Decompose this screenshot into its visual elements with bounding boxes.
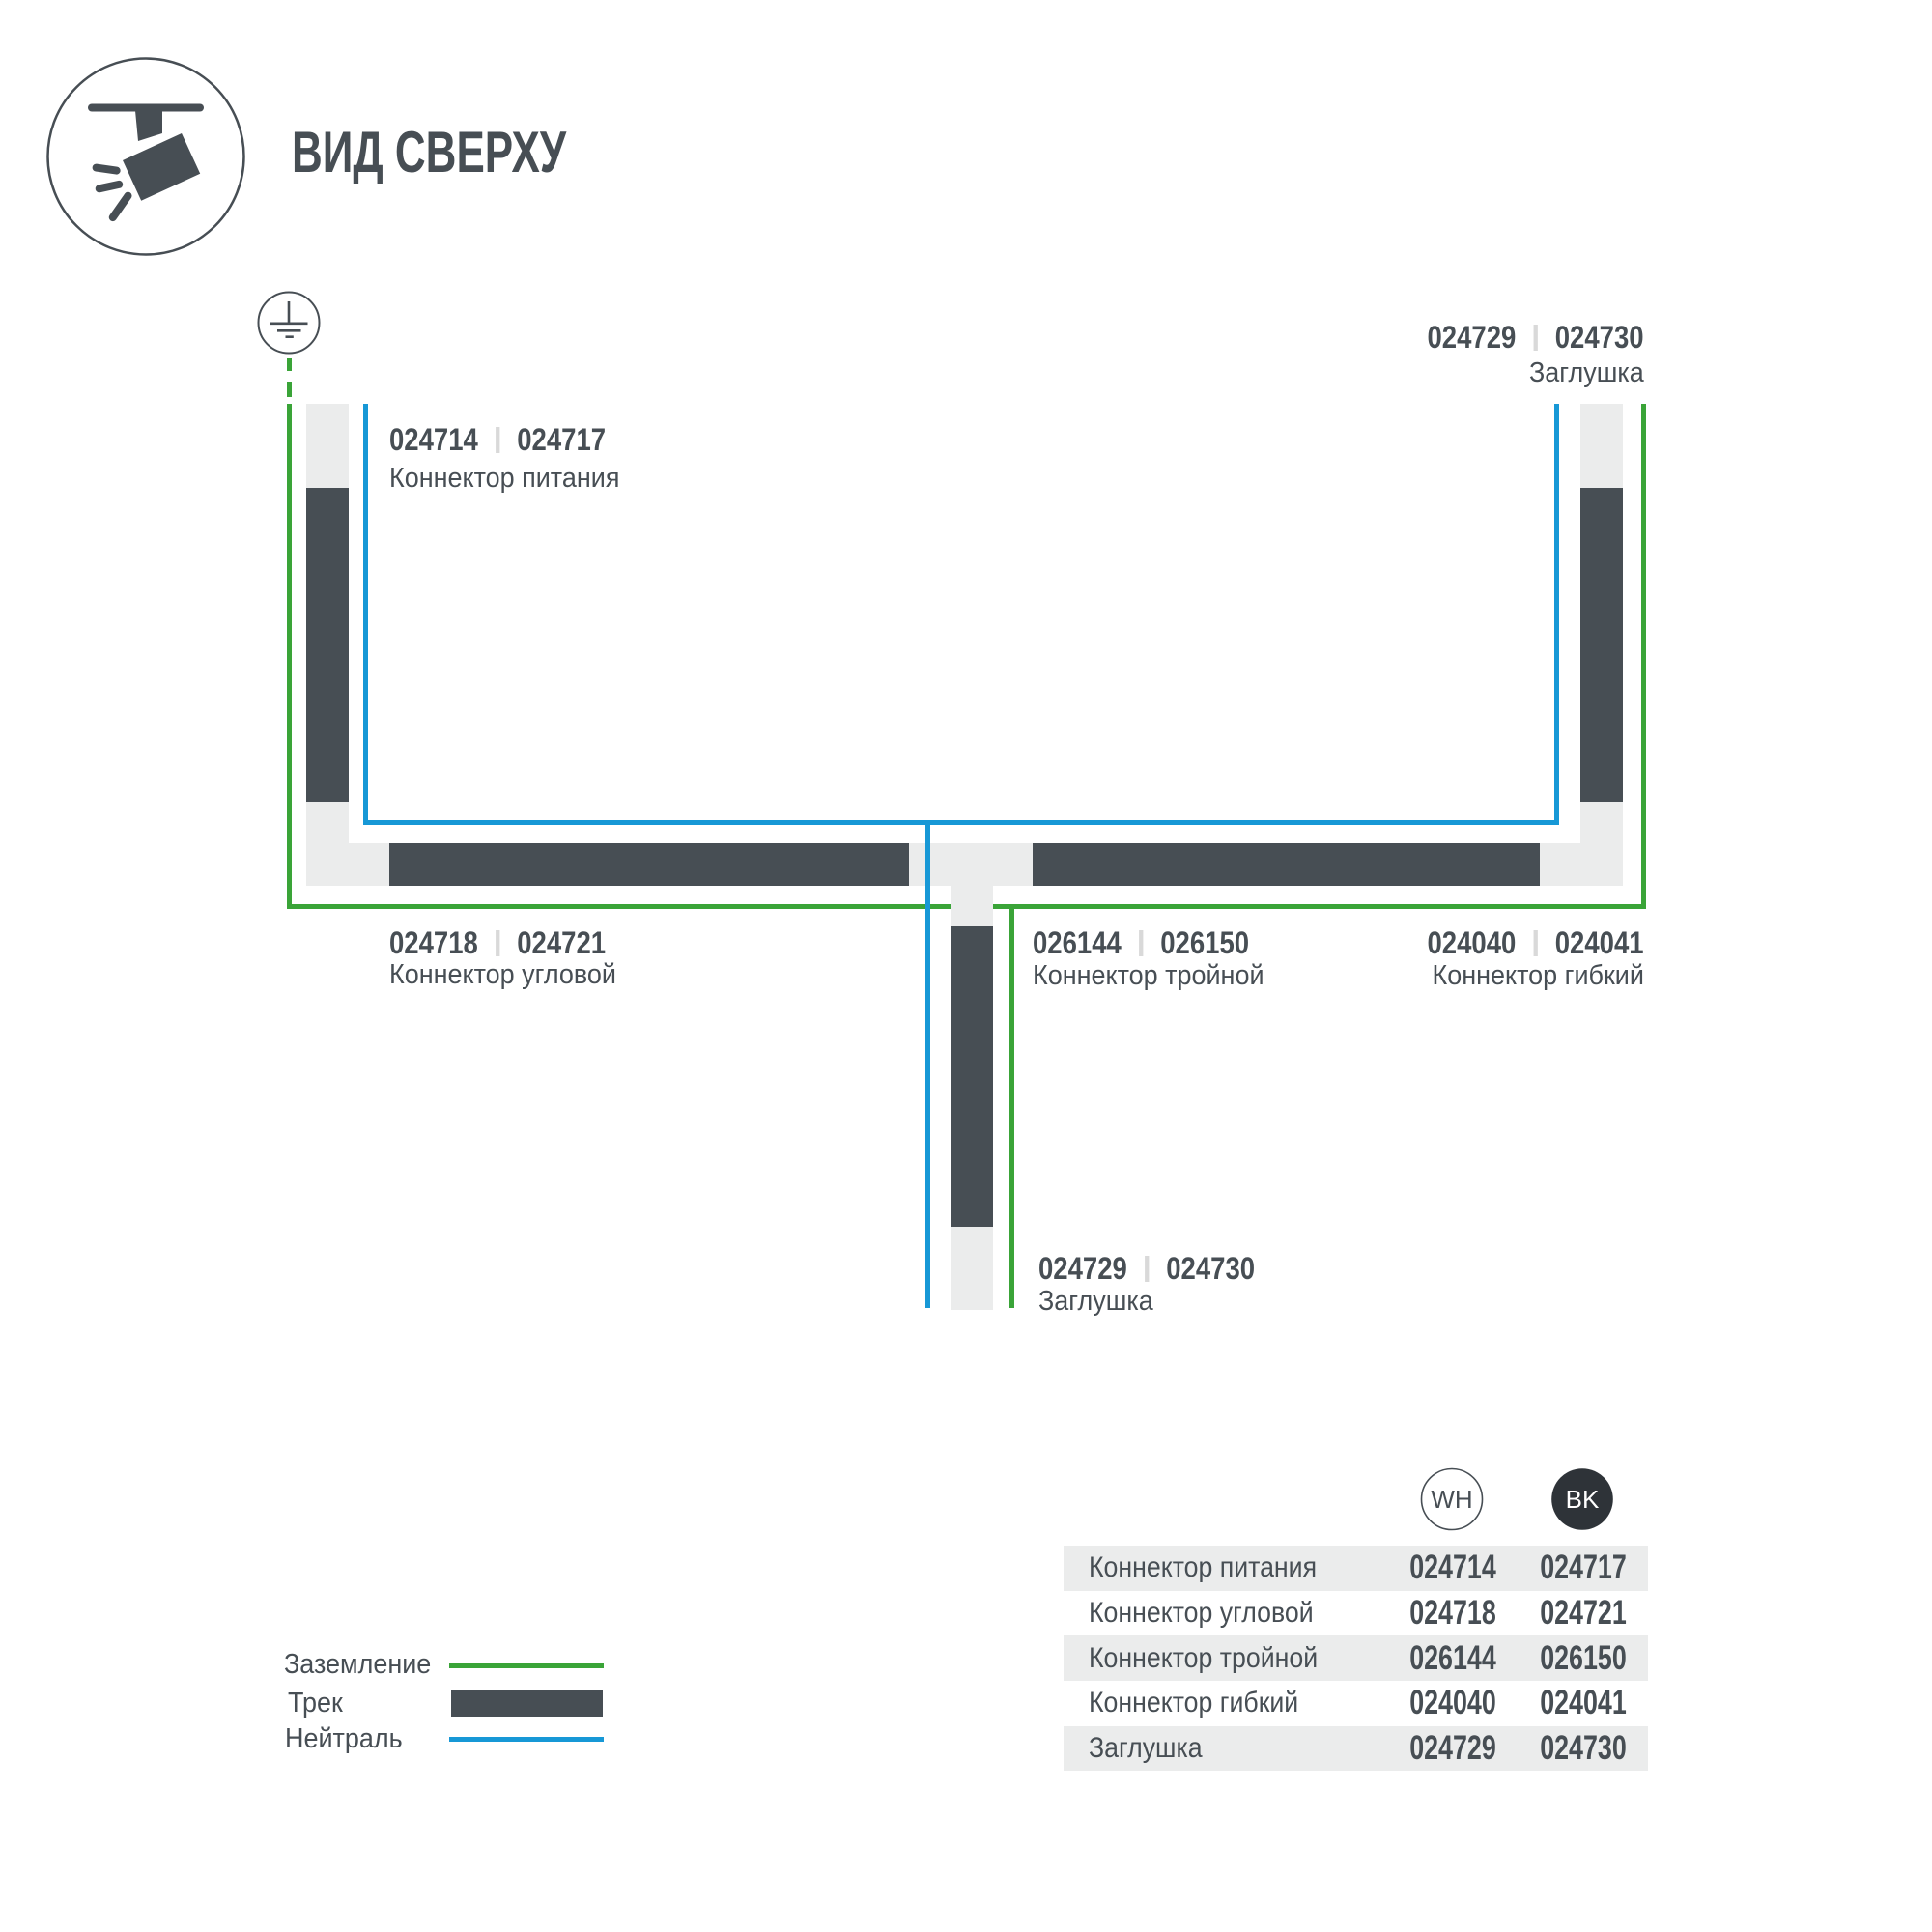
svg-text:BK: BK <box>1566 1485 1600 1514</box>
svg-text:WH: WH <box>1431 1485 1472 1514</box>
